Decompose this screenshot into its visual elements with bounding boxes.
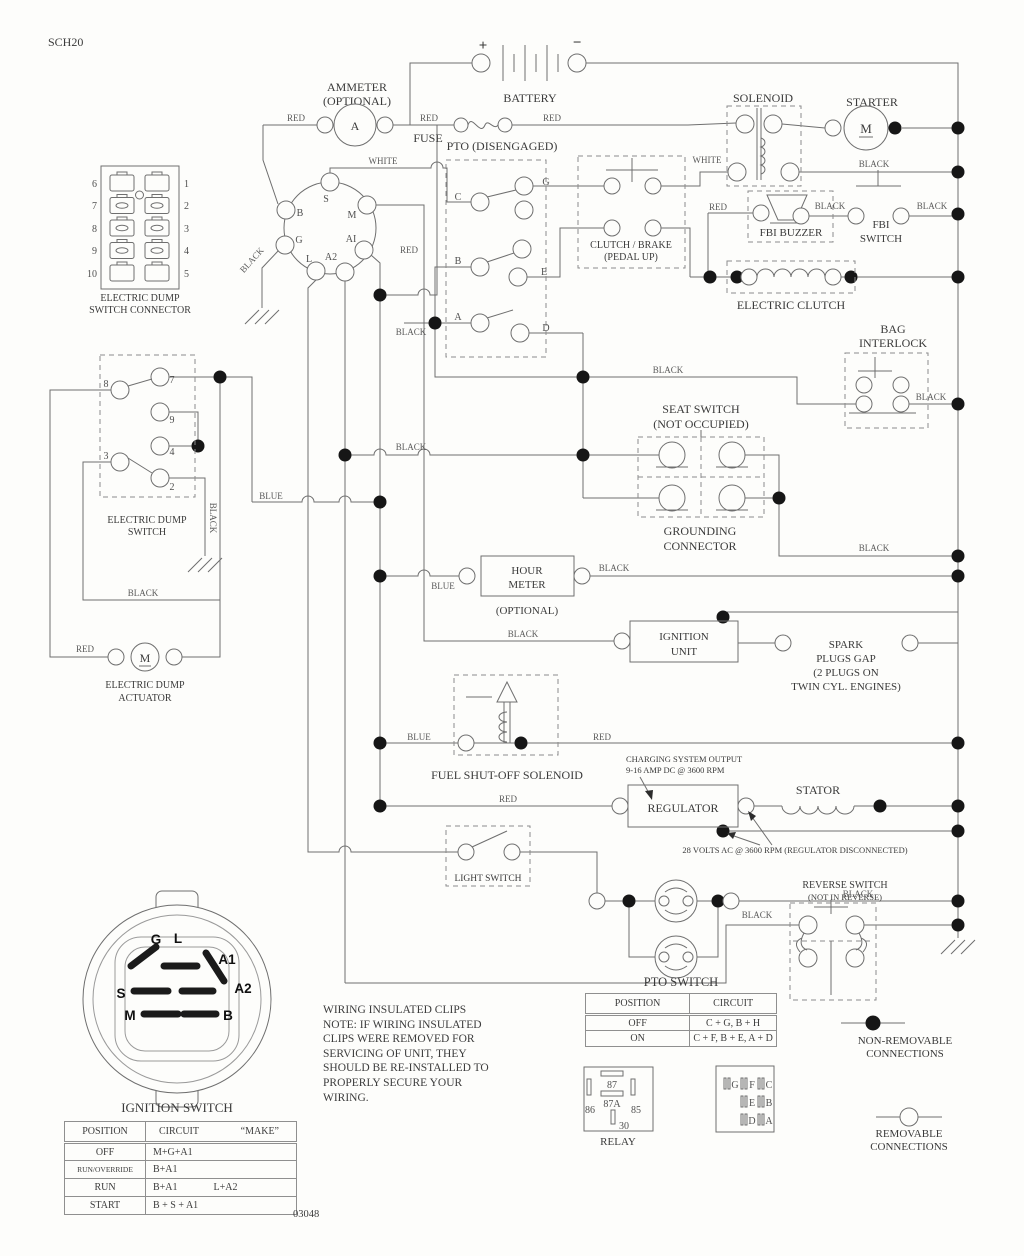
svg-text:4: 4: [184, 246, 189, 257]
svg-text:9: 9: [92, 246, 97, 257]
ign-col-make: “MAKE”: [241, 1126, 279, 1137]
starter-motor-letter: M: [860, 121, 872, 136]
svg-text:BLACK: BLACK: [843, 889, 874, 899]
seat-switch: SEAT SWITCH (NOT OCCUPIED) GROUNDING CON…: [638, 402, 764, 553]
svg-text:RED: RED: [543, 113, 562, 123]
svg-text:C: C: [766, 1080, 773, 1091]
svg-text:STATOR: STATOR: [796, 783, 840, 797]
svg-text:BLACK: BLACK: [396, 442, 427, 452]
svg-text:METER: METER: [508, 579, 546, 591]
pto-col-circuit: CIRCUIT: [690, 994, 777, 1015]
table-row: RUN/OVERRIDE B+A1: [65, 1161, 297, 1179]
ignition-switch-table: POSITION CIRCUIT “MAKE” OFF M+G+A1 RUN/O…: [64, 1121, 297, 1215]
svg-text:10: 10: [87, 269, 97, 280]
svg-text:BLACK: BLACK: [815, 201, 846, 211]
spark-plugs: SPARK PLUGS GAP (2 PLUGS ON TWIN CYL. EN…: [775, 635, 918, 693]
svg-text:SEAT SWITCH: SEAT SWITCH: [662, 402, 740, 416]
svg-text:L: L: [306, 254, 312, 265]
svg-text:CLUTCH / BRAKE: CLUTCH / BRAKE: [590, 240, 672, 251]
wiring-note: WIRING INSULATED CLIPSNOTE: IF WIRING IN…: [323, 1003, 538, 1105]
pto-col-position: POSITION: [586, 994, 690, 1015]
legend-removable: REMOVABLE CONNECTIONS: [870, 1108, 948, 1153]
svg-text:LIGHT SWITCH: LIGHT SWITCH: [454, 874, 521, 884]
svg-text:RED: RED: [593, 732, 612, 742]
svg-text:FUEL SHUT-OFF SOLENOID: FUEL SHUT-OFF SOLENOID: [431, 768, 583, 782]
table-row: OFFC + G, B + H: [586, 1015, 777, 1031]
svg-text:BAG: BAG: [880, 322, 906, 336]
svg-text:RED: RED: [400, 245, 419, 255]
svg-text:7: 7: [170, 375, 175, 386]
fbi-switch: FBI SWITCH: [848, 170, 909, 245]
svg-text:A2: A2: [325, 252, 337, 263]
svg-text:AI: AI: [346, 234, 357, 245]
svg-text:8: 8: [104, 379, 109, 390]
svg-text:87: 87: [607, 1080, 617, 1091]
svg-text:UNIT: UNIT: [671, 646, 698, 658]
svg-text:S: S: [323, 194, 329, 205]
battery-label: BATTERY: [503, 91, 557, 105]
dump-switch-connector: 6 7 8 9 10 1 2 3 4 5 ELECTRIC DUMP SWITC…: [87, 166, 191, 316]
rotary-ignition-switch: G L A1 A2 S M B IGNITION SWITCH: [83, 891, 271, 1115]
svg-text:RED: RED: [709, 202, 728, 212]
svg-text:SWITCH CONNECTOR: SWITCH CONNECTOR: [89, 305, 191, 316]
table-row: START B + S + A1: [65, 1197, 297, 1215]
svg-text:REGULATOR: REGULATOR: [647, 801, 718, 815]
svg-text:BLACK: BLACK: [128, 588, 159, 598]
svg-text:5: 5: [184, 269, 189, 280]
clutch-brake: CLUTCH / BRAKE (PEDAL UP): [578, 156, 685, 268]
svg-text:NON-REMOVABLE: NON-REMOVABLE: [858, 1035, 953, 1047]
svg-text:G: G: [731, 1080, 738, 1091]
svg-text:M: M: [348, 210, 357, 221]
svg-text:GROUNDING: GROUNDING: [664, 524, 737, 538]
svg-text:BLUE: BLUE: [407, 732, 431, 742]
svg-text:B: B: [297, 208, 304, 219]
svg-text:PTO (DISENGAGED): PTO (DISENGAGED): [447, 139, 558, 153]
svg-text:F: F: [749, 1080, 755, 1091]
pto-switch-block: PTO (DISENGAGED) C G B E A D: [446, 139, 557, 357]
svg-text:RED: RED: [76, 644, 95, 654]
svg-text:INTERLOCK: INTERLOCK: [859, 336, 927, 350]
svg-text:WHITE: WHITE: [693, 155, 722, 165]
svg-text:86: 86: [585, 1105, 595, 1116]
svg-text:BLACK: BLACK: [916, 392, 947, 402]
svg-text:28 VOLTS AC @ 3600 RPM (REGULA: 28 VOLTS AC @ 3600 RPM (REGULATOR DISCON…: [682, 845, 907, 855]
svg-text:BLUE: BLUE: [259, 491, 283, 501]
svg-text:BLACK: BLACK: [508, 629, 539, 639]
svg-text:SWITCH: SWITCH: [860, 233, 902, 245]
svg-text:ELECTRIC DUMP: ELECTRIC DUMP: [100, 293, 180, 304]
svg-text:CONNECTIONS: CONNECTIONS: [866, 1048, 944, 1060]
battery-plus: +: [479, 38, 488, 54]
ground-icon: [245, 310, 279, 324]
svg-text:AMMETER: AMMETER: [327, 80, 387, 94]
svg-text:BLACK: BLACK: [396, 327, 427, 337]
svg-text:ELECTRIC DUMP: ELECTRIC DUMP: [107, 515, 187, 526]
svg-text:D: D: [748, 1116, 755, 1127]
svg-text:4: 4: [170, 447, 175, 458]
svg-text:9-16 AMP DC @ 3600 RPM: 9-16 AMP DC @ 3600 RPM: [626, 765, 725, 775]
starter: STARTER M: [825, 95, 898, 150]
svg-text:3: 3: [104, 451, 109, 462]
svg-text:CONNECTIONS: CONNECTIONS: [870, 1141, 948, 1153]
svg-text:B: B: [455, 256, 462, 267]
svg-text:PLUGS GAP: PLUGS GAP: [816, 653, 876, 665]
table-row: RUN B+A1L+A2: [65, 1179, 297, 1197]
svg-text:1: 1: [184, 179, 189, 190]
svg-text:E: E: [541, 267, 547, 278]
svg-text:G: G: [542, 177, 549, 188]
svg-text:RED: RED: [420, 113, 439, 123]
light-switch: LIGHT SWITCH: [446, 826, 530, 886]
battery: + − BATTERY: [472, 35, 586, 105]
wiring-schematic: SCH20: [0, 0, 1024, 1256]
svg-text:S: S: [116, 986, 125, 1001]
svg-text:9: 9: [170, 415, 175, 426]
drawing-number: 03048: [293, 1209, 319, 1220]
svg-text:30: 30: [619, 1121, 629, 1132]
svg-text:(2 PLUGS ON: (2 PLUGS ON: [813, 667, 878, 679]
ign-col-circuit: CIRCUIT: [159, 1126, 199, 1137]
svg-text:BLACK: BLACK: [859, 159, 890, 169]
svg-text:ACTUATOR: ACTUATOR: [118, 693, 171, 704]
svg-text:BLACK: BLACK: [742, 910, 773, 920]
svg-text:L: L: [174, 931, 182, 946]
svg-text:7: 7: [92, 201, 97, 212]
svg-text:G: G: [295, 235, 302, 246]
svg-text:FBI: FBI: [872, 219, 889, 231]
svg-text:IGNITION: IGNITION: [659, 631, 709, 643]
connector-grid: G F C E B D A: [716, 1066, 774, 1132]
electric-clutch: ELECTRIC CLUTCH: [727, 261, 855, 312]
svg-text:WHITE: WHITE: [369, 156, 398, 166]
svg-text:G: G: [151, 932, 162, 947]
bag-interlock: BAG INTERLOCK: [845, 322, 928, 428]
svg-text:FBI BUZZER: FBI BUZZER: [760, 227, 823, 239]
svg-text:M: M: [124, 1008, 135, 1023]
svg-text:A1: A1: [218, 952, 236, 967]
ignition-unit: IGNITION UNIT: [614, 621, 738, 662]
svg-text:FUSE: FUSE: [413, 131, 442, 145]
svg-text:2: 2: [170, 482, 175, 493]
svg-text:CONNECTOR: CONNECTOR: [663, 539, 736, 553]
svg-text:SPARK: SPARK: [829, 639, 864, 651]
svg-text:BLACK: BLACK: [208, 503, 218, 534]
svg-text:RED: RED: [287, 113, 306, 123]
svg-text:ELECTRIC CLUTCH: ELECTRIC CLUTCH: [737, 298, 846, 312]
svg-text:D: D: [542, 323, 549, 334]
svg-text:B: B: [766, 1098, 773, 1109]
pto-switch-table: PTO SWITCH POSITION CIRCUIT OFFC + G, B …: [585, 975, 777, 1047]
svg-text:(OPTIONAL): (OPTIONAL): [496, 605, 559, 617]
svg-text:85: 85: [631, 1105, 641, 1116]
table-row: OFF M+G+A1: [65, 1143, 297, 1161]
ignition-connector: S B M G AI L A2: [276, 173, 376, 281]
svg-text:87A: 87A: [603, 1099, 621, 1110]
electric-dump-actuator: M ELECTRIC DUMP ACTUATOR: [105, 643, 185, 704]
pto-table-title: PTO SWITCH: [585, 975, 777, 990]
svg-text:SWITCH: SWITCH: [128, 527, 166, 538]
svg-text:HOUR: HOUR: [511, 565, 543, 577]
svg-text:RELAY: RELAY: [600, 1136, 636, 1148]
battery-minus: −: [573, 35, 582, 51]
fuel-shutoff-solenoid: FUEL SHUT-OFF SOLENOID: [431, 675, 583, 782]
svg-text:A: A: [765, 1116, 773, 1127]
ammeter-letter: A: [351, 119, 360, 133]
relay: 87 87A 86 85 30 RELAY: [584, 1067, 653, 1148]
svg-text:CHARGING SYSTEM OUTPUT: CHARGING SYSTEM OUTPUT: [626, 754, 743, 764]
svg-text:IGNITION SWITCH: IGNITION SWITCH: [121, 1100, 233, 1115]
svg-text:A2: A2: [234, 981, 251, 996]
ammeter: AMMETER (OPTIONAL) A: [317, 80, 393, 146]
svg-text:E: E: [749, 1098, 755, 1109]
ign-col-position: POSITION: [65, 1122, 146, 1143]
svg-text:C: C: [455, 192, 462, 203]
schematic-id: SCH20: [48, 35, 83, 49]
svg-text:ELECTRIC DUMP: ELECTRIC DUMP: [105, 680, 185, 691]
svg-text:BLACK: BLACK: [859, 543, 890, 553]
svg-text:(NOT OCCUPIED): (NOT OCCUPIED): [653, 417, 748, 431]
svg-text:B: B: [223, 1008, 233, 1023]
svg-text:TWIN CYL. ENGINES): TWIN CYL. ENGINES): [791, 681, 901, 693]
actuator-motor-letter: M: [140, 651, 151, 665]
svg-text:A: A: [454, 312, 462, 323]
table-row: ONC + F, B + E, A + D: [586, 1031, 777, 1047]
svg-text:BLACK: BLACK: [917, 201, 948, 211]
svg-text:2: 2: [184, 201, 189, 212]
solenoid: SOLENOID: [727, 91, 801, 186]
svg-text:REMOVABLE: REMOVABLE: [875, 1128, 942, 1140]
ground-icon: [941, 940, 975, 954]
svg-text:BLACK: BLACK: [599, 563, 630, 573]
legend-nonremovable: NON-REMOVABLE CONNECTIONS: [841, 1016, 953, 1061]
svg-text:6: 6: [92, 179, 97, 190]
regulator: CHARGING SYSTEM OUTPUT 9-16 AMP DC @ 360…: [612, 754, 908, 855]
svg-text:BLUE: BLUE: [431, 581, 455, 591]
svg-text:(PEDAL UP): (PEDAL UP): [604, 252, 658, 263]
svg-text:3: 3: [184, 224, 189, 235]
svg-text:SOLENOID: SOLENOID: [733, 91, 793, 105]
svg-text:RED: RED: [499, 794, 518, 804]
ground-icon: [188, 558, 222, 572]
hour-meter: HOUR METER (OPTIONAL): [459, 556, 590, 617]
svg-text:8: 8: [92, 224, 97, 235]
svg-text:BLACK: BLACK: [653, 365, 684, 375]
